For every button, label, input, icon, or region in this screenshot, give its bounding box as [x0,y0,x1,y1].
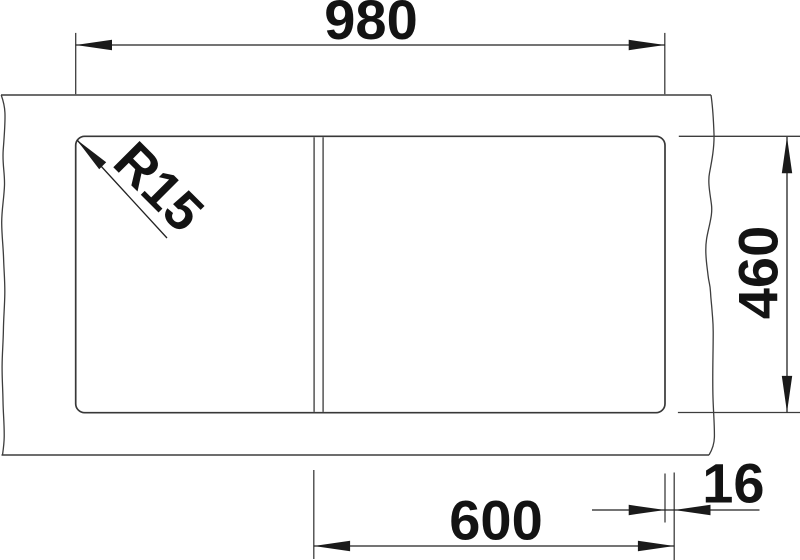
svg-text:16: 16 [702,451,764,514]
svg-text:980: 980 [324,0,417,51]
svg-text:460: 460 [727,226,790,319]
svg-text:600: 600 [449,488,542,551]
